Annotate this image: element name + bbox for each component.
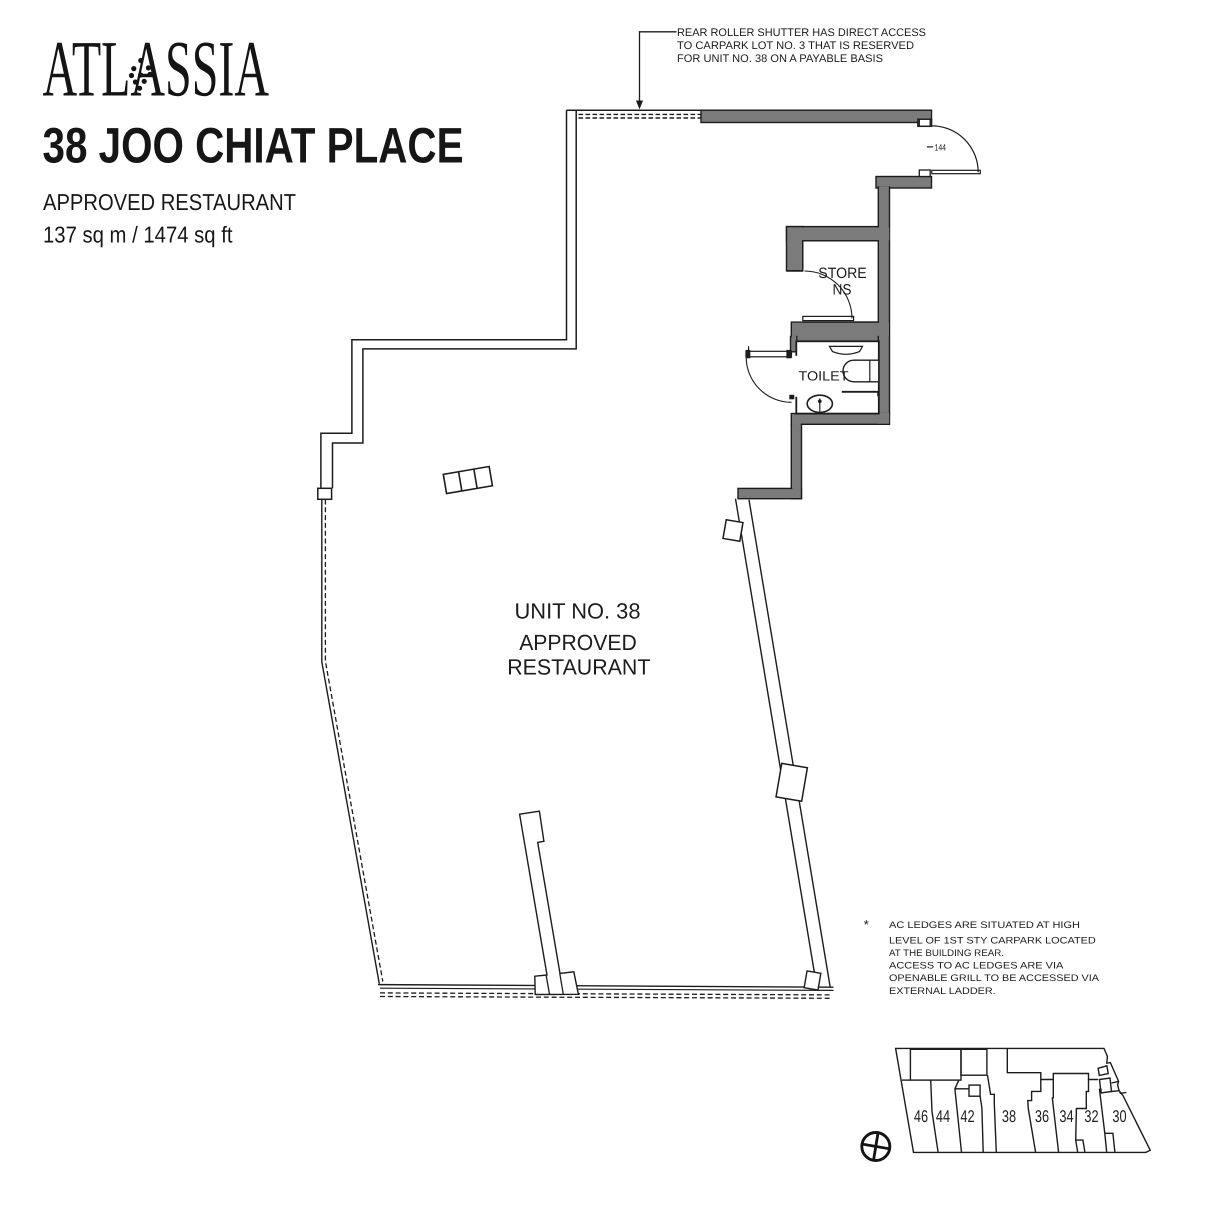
svg-text:FOR UNIT NO. 38 ON A PAYABLE B: FOR UNIT NO. 38 ON A PAYABLE BASIS bbox=[677, 53, 883, 65]
svg-text:RESTAURANT: RESTAURANT bbox=[507, 655, 650, 680]
svg-text:AT THE BUILDING REAR.: AT THE BUILDING REAR. bbox=[889, 948, 1004, 959]
svg-text:UNIT NO. 38: UNIT NO. 38 bbox=[515, 599, 641, 624]
svg-text:TO CARPARK LOT NO. 3 THAT IS R: TO CARPARK LOT NO. 3 THAT IS RESERVED bbox=[677, 40, 914, 52]
svg-text:30: 30 bbox=[1112, 1107, 1126, 1126]
svg-text:ACCESS TO AC LEDGES ARE VIA: ACCESS TO AC LEDGES ARE VIA bbox=[889, 960, 1064, 971]
svg-text:REAR ROLLER SHUTTER HAS DIRECT: REAR ROLLER SHUTTER HAS DIRECT ACCESS bbox=[677, 27, 926, 39]
svg-text:EXTERNAL LADDER.: EXTERNAL LADDER. bbox=[889, 986, 996, 997]
svg-text:137 sq m / 1474 sq ft: 137 sq m / 1474 sq ft bbox=[43, 222, 233, 248]
svg-text:34: 34 bbox=[1059, 1107, 1073, 1126]
svg-text:STORE: STORE bbox=[818, 265, 867, 282]
svg-text:144: 144 bbox=[935, 142, 947, 152]
svg-text:AC LEDGES ARE SITUATED AT HIGH: AC LEDGES ARE SITUATED AT HIGH bbox=[889, 920, 1080, 931]
svg-text:38: 38 bbox=[1002, 1107, 1016, 1126]
svg-text:38 JOO CHIAT PLACE: 38 JOO CHIAT PLACE bbox=[43, 118, 464, 174]
svg-text:APPROVED RESTAURANT: APPROVED RESTAURANT bbox=[43, 189, 296, 215]
svg-text:APPROVED: APPROVED bbox=[519, 630, 637, 655]
svg-text:LEVEL OF 1ST STY CARPARK LOCAT: LEVEL OF 1ST STY CARPARK LOCATED bbox=[889, 935, 1096, 946]
svg-text:TOILET: TOILET bbox=[799, 368, 849, 383]
svg-text:ATLASSIA: ATLASSIA bbox=[43, 26, 270, 114]
svg-text:46: 46 bbox=[914, 1107, 928, 1126]
svg-text:OPENABLE GRILL TO BE ACCESSED: OPENABLE GRILL TO BE ACCESSED VIA bbox=[889, 973, 1100, 984]
svg-text:36: 36 bbox=[1035, 1107, 1049, 1126]
svg-text:42: 42 bbox=[960, 1107, 974, 1126]
svg-text:44: 44 bbox=[936, 1107, 950, 1126]
svg-text:*: * bbox=[864, 917, 869, 932]
svg-text:32: 32 bbox=[1084, 1107, 1098, 1126]
svg-text:NS: NS bbox=[833, 282, 852, 299]
